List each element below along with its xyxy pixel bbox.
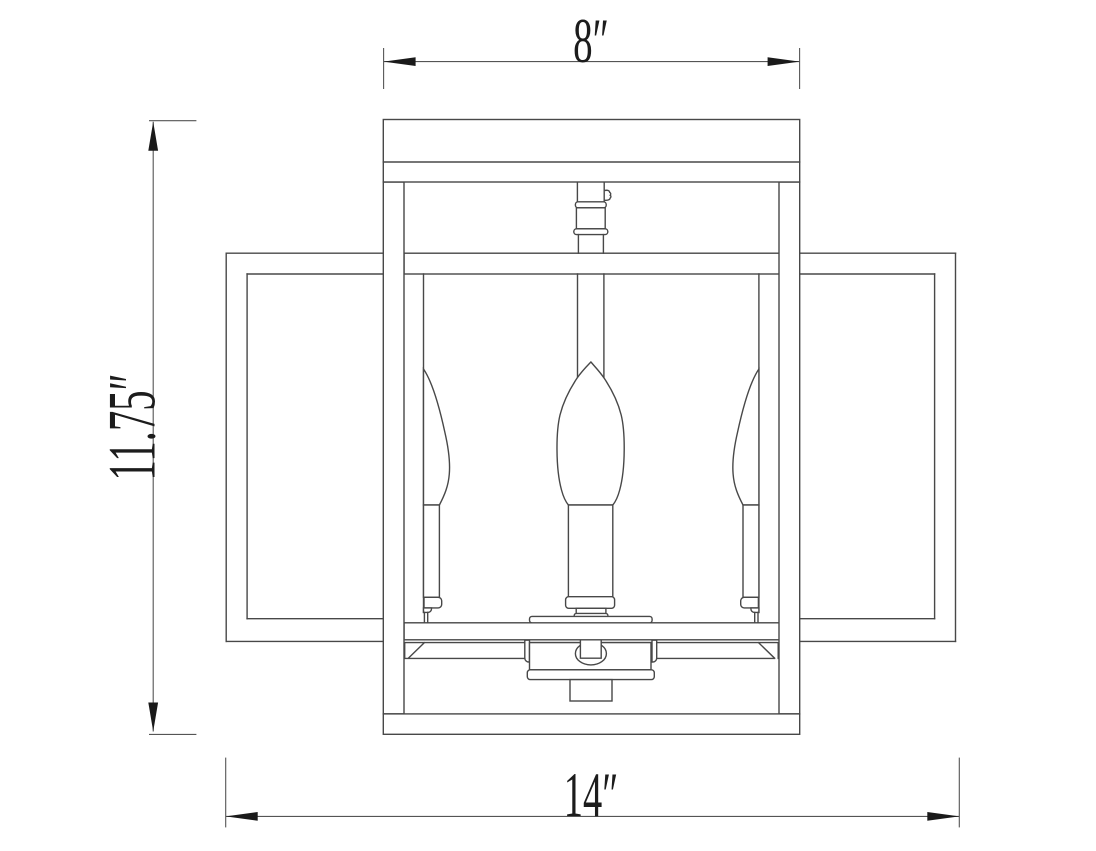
svg-text:14″: 14″ (564, 760, 618, 830)
svg-text:11.75″: 11.75″ (95, 373, 170, 480)
svg-text:8″: 8″ (573, 6, 609, 76)
